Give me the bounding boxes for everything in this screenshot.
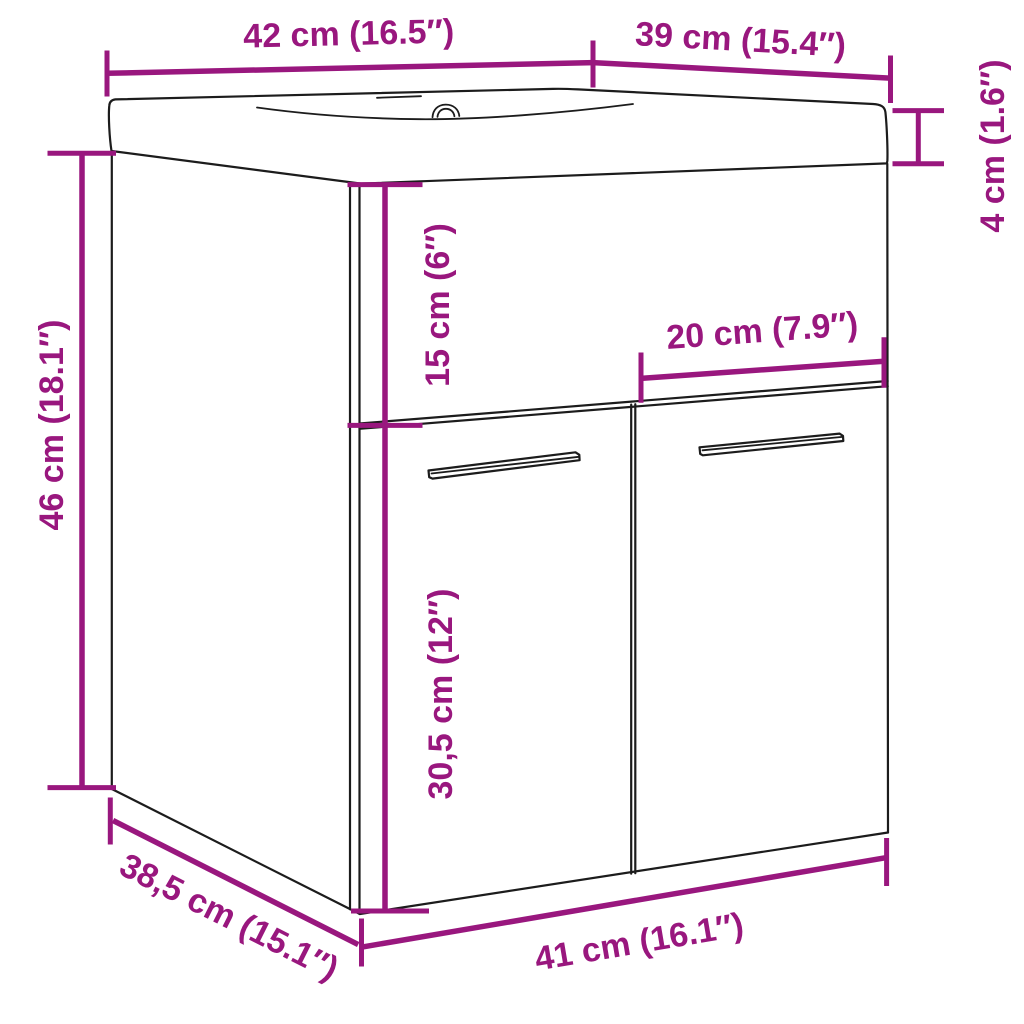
left-door-handle bbox=[429, 452, 580, 478]
dim-cabinet-width-label: 41 cm (16.1″) bbox=[532, 906, 746, 979]
dim-door-width: 20 cm (7.9″) bbox=[641, 305, 884, 403]
right-door-handle bbox=[700, 434, 844, 456]
basin-top bbox=[109, 89, 888, 184]
diagram-canvas: 42 cm (16.5″) 39 cm (15.4″) 4 cm (1.6″) … bbox=[0, 0, 1024, 1024]
dim-basin-height: 4 cm (1.6″) bbox=[893, 59, 1013, 232]
dim-front-heights: 15 cm (6″) 30,5 cm (12″) bbox=[348, 185, 461, 911]
dim-door-width-label: 20 cm (7.9″) bbox=[665, 305, 859, 357]
dim-cabinet-depth: 38,5 cm (15.1″) bbox=[110, 798, 358, 989]
door-divider-gap bbox=[631, 404, 635, 873]
cabinet-body bbox=[112, 154, 888, 914]
door-top-gap bbox=[360, 381, 888, 429]
dim-cabinet-height: 46 cm (18.1″) bbox=[33, 153, 116, 787]
dim-basin-height-label: 4 cm (1.6″) bbox=[974, 59, 1012, 232]
vanity-dimension-diagram: 42 cm (16.5″) 39 cm (15.4″) 4 cm (1.6″) … bbox=[0, 0, 1024, 1024]
front-right-edge bbox=[887, 164, 888, 833]
dim-door-height-label: 30,5 cm (12″) bbox=[422, 589, 460, 800]
dim-cabinet-width: 41 cm (16.1″) bbox=[362, 838, 887, 978]
cabinet-drawing bbox=[109, 89, 888, 914]
dim-basin-depth-label: 39 cm (15.4″) bbox=[634, 15, 847, 65]
dim-basin-width-label: 42 cm (16.5″) bbox=[243, 12, 455, 55]
dim-cabinet-height-label: 46 cm (18.1″) bbox=[33, 320, 71, 531]
dim-upper-panel-height-label: 15 cm (6″) bbox=[419, 223, 457, 387]
dim-basin-width: 42 cm (16.5″) bbox=[107, 12, 593, 96]
dim-basin-depth: 39 cm (15.4″) bbox=[593, 15, 891, 103]
